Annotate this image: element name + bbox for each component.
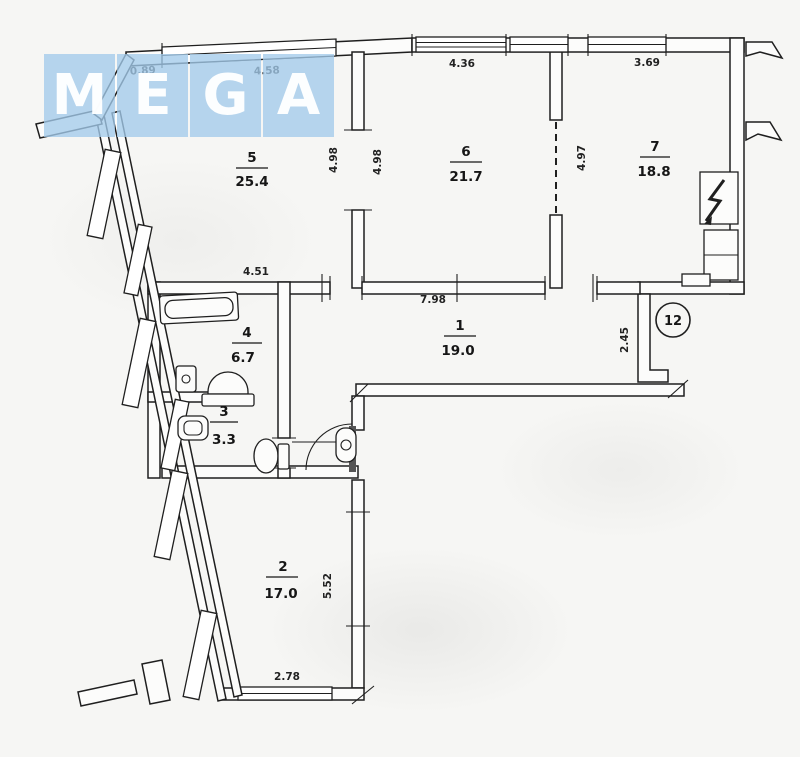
meter-cabinet bbox=[704, 230, 738, 280]
svg-text:25.4: 25.4 bbox=[235, 174, 268, 190]
svg-text:5: 5 bbox=[247, 150, 256, 166]
dim-room7-height: 4.97 bbox=[576, 145, 588, 171]
watermark-tile: A bbox=[263, 54, 334, 137]
balcony-stub-bottom bbox=[142, 660, 170, 704]
dim-hall-right-height: 2.45 bbox=[619, 327, 631, 353]
watermark-tile: G bbox=[190, 54, 261, 137]
watermark-letter: A bbox=[277, 68, 320, 124]
watermark-letter: E bbox=[133, 68, 171, 124]
dimension-labels: 0.89 4.58 4.36 3.69 4.98 4.98 4.97 4.51 … bbox=[130, 57, 660, 683]
toilet-room3 bbox=[254, 439, 289, 473]
svg-text:18.8: 18.8 bbox=[637, 164, 670, 180]
dim-hall-width: 7.98 bbox=[420, 294, 446, 306]
svg-text:6: 6 bbox=[461, 144, 470, 160]
svg-text:3.3: 3.3 bbox=[212, 432, 236, 448]
bathtub bbox=[159, 292, 238, 324]
svg-text:3: 3 bbox=[219, 404, 228, 420]
floorplan-scan: 12 5 25.4 6 21.7 7 18.8 1 19.0 bbox=[0, 0, 800, 757]
watermark-letter: M bbox=[52, 68, 108, 124]
outer-walls bbox=[126, 38, 782, 700]
wall-hall-top-b bbox=[362, 282, 545, 294]
dim-room2-height: 5.52 bbox=[322, 573, 334, 599]
watermark-letter: G bbox=[203, 68, 249, 124]
wall-corridor-right-upper bbox=[352, 396, 364, 430]
svg-text:17.0: 17.0 bbox=[264, 586, 297, 602]
svg-text:1: 1 bbox=[455, 318, 464, 334]
stairwell-badge: 12 bbox=[656, 303, 690, 337]
room-label-6: 6 21.7 bbox=[449, 144, 482, 185]
toilet-room4 bbox=[202, 372, 254, 406]
room-label-5: 5 25.4 bbox=[235, 150, 268, 190]
stairwell-number: 12 bbox=[664, 314, 682, 329]
wall-6-7-stub-top bbox=[550, 52, 562, 120]
sink-room3 bbox=[178, 416, 208, 440]
dim-room5-height: 4.98 bbox=[328, 147, 340, 173]
dim-room7-width: 3.69 bbox=[634, 57, 660, 69]
wall-6-7-stub-bottom bbox=[550, 215, 562, 288]
room-label-4: 4 6.7 bbox=[231, 325, 262, 366]
dim-room2-width: 2.78 bbox=[274, 671, 300, 683]
svg-text:21.7: 21.7 bbox=[449, 169, 482, 185]
wall-corridor-right-lower bbox=[352, 480, 364, 688]
water-heater bbox=[336, 428, 356, 462]
svg-text:19.0: 19.0 bbox=[441, 343, 474, 359]
mega-watermark: M E G A bbox=[44, 54, 334, 137]
vent-flag-top bbox=[746, 42, 782, 58]
wall-hall-bottom bbox=[356, 384, 684, 396]
wall-ticks bbox=[235, 130, 688, 704]
watermark-tile: E bbox=[117, 54, 188, 137]
fixtures bbox=[159, 172, 738, 473]
dim-room4-width: 4.51 bbox=[243, 266, 269, 278]
dim-room6-width: 4.36 bbox=[449, 58, 475, 70]
electrical-panel-icon bbox=[700, 172, 738, 225]
window-room6-a bbox=[416, 37, 506, 52]
svg-text:2: 2 bbox=[278, 559, 287, 575]
svg-text:4: 4 bbox=[242, 325, 251, 341]
balcony-facade bbox=[36, 54, 242, 706]
sink-room4 bbox=[176, 366, 196, 392]
wall-room43-right-upper bbox=[278, 282, 290, 438]
wall-hall-top-c bbox=[597, 282, 640, 294]
vent-flag-mid bbox=[746, 122, 781, 140]
watermark-tile: M bbox=[44, 54, 115, 137]
room-label-7: 7 18.8 bbox=[637, 139, 670, 180]
balcony-stub-bottom-left bbox=[78, 680, 137, 706]
threshold bbox=[682, 274, 710, 286]
room-label-2: 2 17.0 bbox=[264, 559, 298, 602]
room-label-1: 1 19.0 bbox=[441, 318, 476, 359]
svg-text:6.7: 6.7 bbox=[231, 350, 255, 366]
svg-text:7: 7 bbox=[650, 139, 659, 155]
wall-right-mid bbox=[638, 294, 668, 382]
wall-hall-top-a bbox=[148, 282, 330, 294]
dim-room6-height: 4.98 bbox=[372, 149, 384, 175]
wall-5-6-upper bbox=[352, 52, 364, 130]
room-label-3: 3 3.3 bbox=[210, 404, 238, 448]
